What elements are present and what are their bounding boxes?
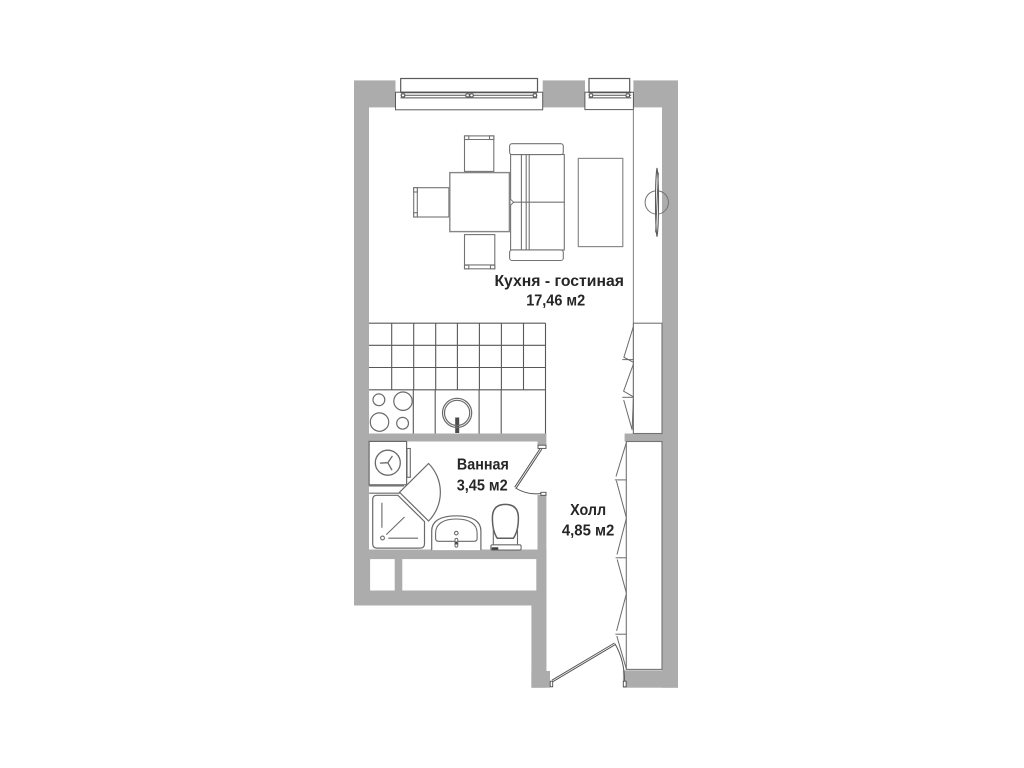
svg-text:4,85 м2: 4,85 м2 (562, 523, 615, 540)
svg-text:17,46 м2: 17,46 м2 (526, 293, 585, 310)
svg-text:3,45 м2: 3,45 м2 (457, 478, 508, 495)
svg-text:Холл: Холл (570, 502, 606, 519)
svg-text:Кухня - гостиная: Кухня - гостиная (494, 273, 624, 290)
svg-text:Ванная: Ванная (457, 456, 509, 473)
